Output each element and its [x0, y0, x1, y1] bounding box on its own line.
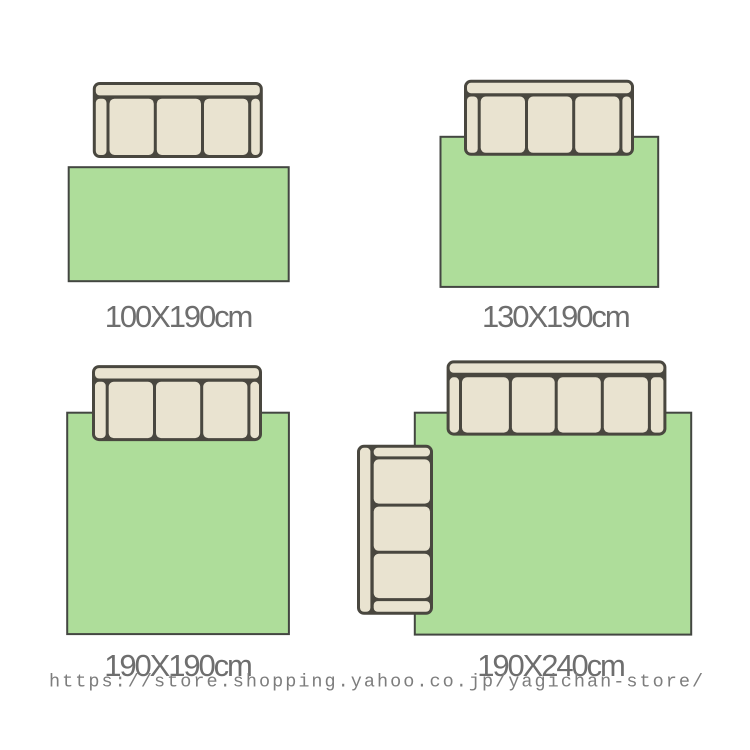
svg-text:130X190cm: 130X190cm: [482, 299, 629, 334]
svg-text:https://store.shopping.yahoo.c: https://store.shopping.yahoo.co.jp/yagic…: [49, 672, 705, 693]
svg-text:100X190cm: 100X190cm: [105, 299, 252, 334]
